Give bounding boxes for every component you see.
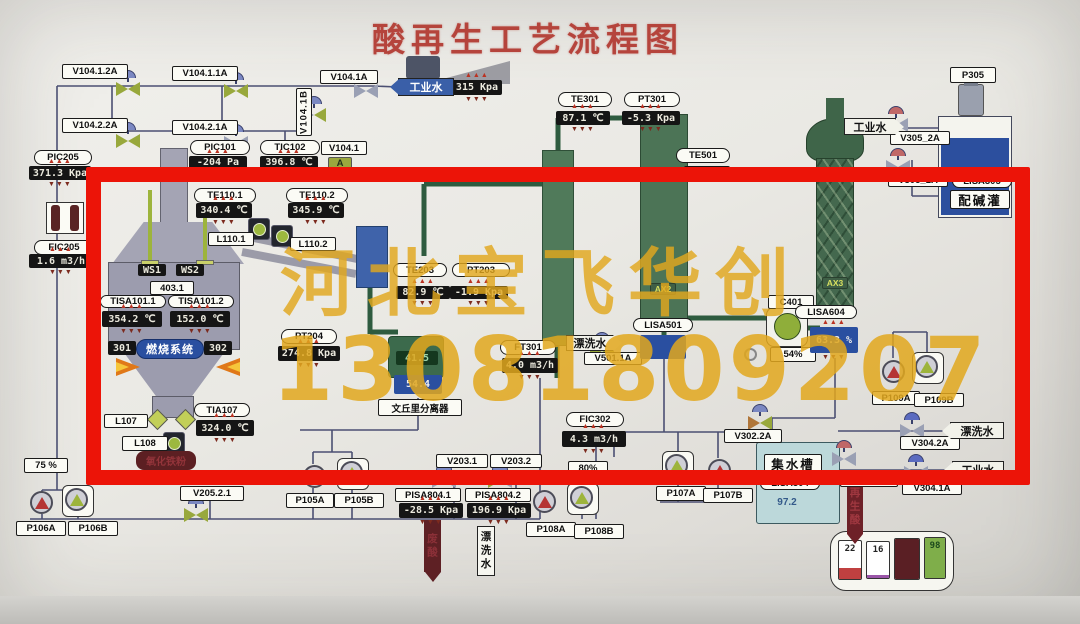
valve-wedge-right [236, 84, 248, 98]
pump-p106b-box[interactable] [62, 485, 94, 517]
label-p108b: P108B [574, 524, 624, 539]
alarm-triangles-bottom-icon: ▼▼▼ [48, 181, 72, 188]
label-v104.2.1a: V104.2.1A [172, 120, 238, 135]
valve-body-icon [116, 134, 140, 148]
heat-exchanger-tube [70, 205, 79, 231]
alarm-triangles-top-icon: ▲▲▲ [49, 246, 73, 253]
display-28.5-kpa: -28.5 Kpa [399, 503, 463, 518]
valve-wedge-left [116, 134, 128, 148]
label-p107b: P107B [703, 488, 753, 503]
display-1.6-m3-h: 1.6 m3/h [29, 254, 93, 268]
alarm-triangles-top-icon: ▲▲▲ [277, 148, 301, 155]
page-title: 酸再生工艺流程图 [0, 13, 1056, 61]
valve-body-icon [116, 82, 140, 96]
display-196.9-kpa: 196.9 Kpa [467, 503, 531, 518]
valve-wedge-right [366, 84, 378, 98]
valve-wedge-left [184, 508, 196, 522]
regenerated-acid-tag: 再生酸 [847, 480, 863, 534]
tank-value: 98 [925, 541, 945, 551]
rinse-water-tag: 漂洗水 [477, 526, 495, 576]
alarm-triangles-top-icon: ▲▲▲ [487, 495, 511, 502]
storage-tank [894, 538, 920, 580]
valve-wedge-right [128, 134, 140, 148]
label-75-%: 75 % [24, 458, 68, 473]
label-p305: P305 [950, 67, 996, 83]
valve-wedge-left [354, 84, 366, 98]
alarm-triangles-bottom-icon: ▼▼▼ [465, 96, 489, 103]
tag-arrow-icon [390, 79, 399, 95]
alarm-triangles-top-icon: ▲▲▲ [48, 158, 72, 165]
valve-body-icon [224, 84, 248, 98]
pump-impeller-icon [70, 494, 84, 506]
pump-impeller-icon [35, 497, 49, 509]
display-5.3-kpa: -5.3 Kpa [622, 111, 680, 125]
agitator-motor [958, 84, 984, 116]
tag-arrow-icon [895, 119, 904, 135]
alarm-triangles-bottom-icon: ▼▼▼ [49, 269, 73, 276]
photo-background-floor [0, 596, 1080, 624]
display-371.3-kpa: 371.3 Kpa [29, 166, 91, 180]
label-v104.1.1a: V104.1.1A [172, 66, 238, 81]
tank-level-fill [867, 575, 889, 578]
alarm-triangles-bottom-icon: ▼▼▼ [487, 519, 511, 526]
label-p106a: P106A [16, 521, 66, 536]
watermark-phone: 13081809207 [272, 318, 990, 421]
label-v104.1a: V104.1A [320, 70, 378, 84]
pump-p108b[interactable] [570, 486, 593, 509]
label-te501: TE501 [676, 148, 730, 163]
waste-acid-tag: 废酸 [424, 520, 441, 572]
valve-wedge-right [128, 82, 140, 96]
alarm-triangles-bottom-icon: ▼▼▼ [571, 126, 595, 133]
pump-p106a[interactable] [30, 491, 53, 514]
pump-p106b[interactable] [65, 488, 88, 511]
label-v205.2.1: V205.2.1 [180, 486, 244, 501]
label-p107a: P107A [656, 486, 706, 501]
valve-wedge-right [314, 108, 326, 122]
absorber-ax3-stub [826, 98, 844, 122]
valve-body-icon [354, 84, 378, 98]
tag-arrow-down-icon [425, 572, 441, 582]
display-lisa304-value: 97.2 [766, 495, 808, 509]
alarm-triangles-top-icon: ▲▲▲ [206, 148, 230, 155]
industrial-water-tag: 工业水 [398, 78, 454, 96]
alarm-triangles-top-icon: ▲▲▲ [465, 72, 489, 79]
tag-arrow-down-icon [847, 534, 863, 544]
watermark-company: 河北宝飞华创 [280, 224, 802, 331]
alarm-triangles-top-icon: ▲▲▲ [571, 103, 595, 110]
valve-wedge-left [224, 84, 236, 98]
valve-body-icon [184, 508, 208, 522]
industrial-water-tag: 工业水 [844, 118, 896, 135]
tank-value: 16 [867, 545, 889, 555]
pump-p108a[interactable] [533, 490, 556, 513]
storage-tank: 98 [924, 537, 946, 579]
pump-impeller-icon [538, 496, 552, 508]
heat-exchanger-tube [51, 205, 60, 231]
storage-tank: 22 [838, 540, 862, 580]
hmi-photo-frame: 221698V104.1.2AV104.1.1AV104.1AV104.2.2A… [0, 0, 1080, 624]
alarm-triangles-top-icon: ▲▲▲ [419, 495, 443, 502]
label-v104.1: V104.1 [321, 141, 367, 155]
label-p105b: P105B [334, 493, 384, 508]
valve-wedge-left [116, 82, 128, 96]
storage-tank: 16 [866, 541, 890, 579]
label-v104.2.2a: V104.2.2A [62, 118, 128, 133]
label-p108a: P108A [526, 522, 576, 537]
pump-impeller-icon [575, 492, 589, 504]
alarm-triangles-bottom-icon: ▼▼▼ [639, 126, 663, 133]
label-p106b: P106B [68, 521, 118, 536]
display-315-kpa: 315 Kpa [452, 80, 502, 95]
tank-level-fill [895, 539, 919, 579]
valve-actuator-icon [888, 106, 904, 114]
alarm-triangles-bottom-icon: ▼▼▼ [419, 519, 443, 526]
label-v104.1.2a: V104.1.2A [62, 64, 128, 79]
valve-wedge-right [196, 508, 208, 522]
pump-p108b-box[interactable] [567, 483, 599, 515]
label-p105a: P105A [286, 493, 334, 508]
label-v104.1b: V104.1B [296, 88, 312, 136]
tank-value: 22 [839, 544, 861, 554]
tank-level-fill [839, 568, 861, 579]
display-87.1: 87.1 ℃ [556, 111, 610, 125]
valve-actuator-icon [890, 148, 906, 156]
alarm-triangles-top-icon: ▲▲▲ [639, 103, 663, 110]
